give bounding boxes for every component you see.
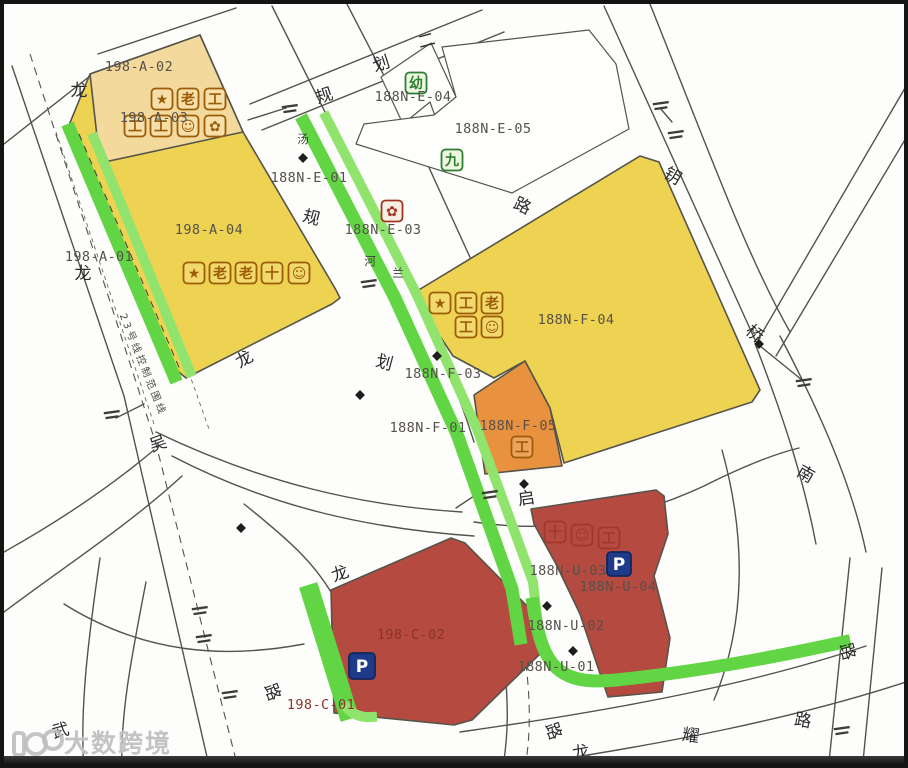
map-canvas: ★老工工工☺✿★老老十☺★工老工☺工✿幼九十☺工PP 198-A-02198-A… xyxy=(4,4,908,768)
road-line xyxy=(4,450,154,552)
road-line xyxy=(828,558,850,768)
parcel-label-188n-f-04: 188N-F-04 xyxy=(538,312,615,328)
parcel-label-188n-f-03: 188N-F-03 xyxy=(405,366,482,382)
parking-sign: P xyxy=(349,653,375,679)
road-name-char: 路 xyxy=(793,710,813,733)
watermark: 大数跨境 xyxy=(12,724,172,760)
utility-icon: 工 xyxy=(512,437,533,458)
station-icon: ✿ xyxy=(205,116,226,137)
survey-mark xyxy=(542,601,552,611)
survey-mark xyxy=(355,390,365,400)
road-line xyxy=(780,336,866,552)
road-name-char: 汤 xyxy=(297,132,309,146)
elderly-care-icon: 老 xyxy=(178,89,199,110)
road-name-char: 划 xyxy=(373,351,395,375)
road-line xyxy=(862,568,882,768)
svg-text:九: 九 xyxy=(444,153,459,169)
star-icon: ★ xyxy=(184,263,205,284)
svg-text:P: P xyxy=(613,555,625,575)
svg-text:老: 老 xyxy=(181,91,195,108)
svg-text:☺: ☺ xyxy=(485,320,500,336)
road-name-char: 路 xyxy=(510,194,534,219)
parcel-label-188n-f-05: 188N-F-05 xyxy=(480,418,557,434)
bottom-frame-bar xyxy=(4,756,904,764)
coordinate-annotation xyxy=(104,410,121,419)
parcel-label-198-a-04: 198-A-04 xyxy=(175,222,243,238)
svg-text:工: 工 xyxy=(459,320,473,336)
svg-text:工: 工 xyxy=(208,92,222,108)
road-name-char: 龙 xyxy=(71,81,88,101)
svg-text:老: 老 xyxy=(239,265,253,282)
road-name-char: 规 xyxy=(300,206,322,230)
parcel-label-188n-u-02: 188N-U-02 xyxy=(528,618,605,634)
watermark-logo xyxy=(12,728,58,756)
watermark-text: 大数跨境 xyxy=(64,724,172,760)
parcel-label-188n-e-03: 188N-E-03 xyxy=(345,222,422,238)
parcel-label-198-c-02: 198-C-02 xyxy=(377,627,445,643)
utility-icon: 工 xyxy=(205,89,226,110)
survey-mark xyxy=(568,646,578,656)
parcel-label-198-a-01: 198-A-01 xyxy=(65,249,133,265)
leader-line xyxy=(248,108,286,120)
svg-text:✿: ✿ xyxy=(209,119,221,135)
parcel-label-188n-e-01: 188N-E-01 xyxy=(271,170,348,186)
svg-text:✿: ✿ xyxy=(386,204,398,220)
star-icon: ★ xyxy=(152,89,173,110)
svg-text:工: 工 xyxy=(515,440,529,456)
road-line xyxy=(64,604,304,651)
star-icon: ★ xyxy=(430,293,451,314)
svg-text:工: 工 xyxy=(459,296,473,312)
parcel-label-188n-e-05: 188N-E-05 xyxy=(455,121,532,137)
utility-icon: 工 xyxy=(456,293,477,314)
road-line xyxy=(244,504,331,592)
coordinate-annotation xyxy=(222,690,239,699)
leader-line xyxy=(456,496,474,508)
utility-icon: 工 xyxy=(456,317,477,338)
community-icon: ☺ xyxy=(289,263,310,284)
parcel-label-188n-e-04: 188N-E-04 xyxy=(375,89,452,105)
svg-text:P: P xyxy=(356,657,368,677)
svg-text:工: 工 xyxy=(602,531,616,547)
svg-text:老: 老 xyxy=(485,295,499,312)
parcel-label-198-c-01: 198-C-01 xyxy=(287,697,355,713)
parcel-label-188n-f-01: 188N-F-01 xyxy=(390,420,467,436)
planning-map: ★老工工工☺✿★老老十☺★工老工☺工✿幼九十☺工PP 198-A-02198-A… xyxy=(0,0,908,768)
coordinate-annotation xyxy=(834,726,851,735)
road-name-char: 启 xyxy=(516,488,536,510)
elderly-care-icon: 老 xyxy=(482,293,503,314)
road-name-char: 路 xyxy=(259,681,284,704)
parcel-label-188n-u-03: 188N-U-03 xyxy=(530,563,607,579)
svg-text:老: 老 xyxy=(213,265,227,282)
parcel-label-198-a-03: 198-A-03 xyxy=(120,110,188,126)
parcel-label-188n-u-01: 188N-U-01 xyxy=(518,659,595,675)
road-name-char: 河 xyxy=(364,254,376,268)
survey-mark xyxy=(236,523,246,533)
road-line xyxy=(758,76,908,340)
road-name-char: 路 xyxy=(540,720,565,743)
road-line xyxy=(776,128,908,356)
coordinate-annotation xyxy=(653,101,670,110)
leader-line xyxy=(116,404,144,418)
coordinate-annotation xyxy=(668,130,685,139)
road-name-char: 路 xyxy=(835,641,859,663)
road-name-char: 二 xyxy=(416,29,438,53)
svg-text:十: 十 xyxy=(548,524,562,541)
coordinate-annotation xyxy=(361,279,378,288)
pump-station-icon: ✿ xyxy=(382,201,403,222)
survey-mark xyxy=(298,153,308,163)
clinic-icon: 十 xyxy=(262,263,283,284)
coordinate-annotation xyxy=(192,606,209,615)
svg-text:☺: ☺ xyxy=(292,266,307,282)
road-name-char: 耀 xyxy=(681,725,701,747)
leader-line xyxy=(660,108,672,122)
road-line xyxy=(156,432,462,512)
school-icon: 九 xyxy=(442,150,463,171)
svg-text:★: ★ xyxy=(188,266,201,282)
road-line xyxy=(172,456,474,536)
road-name-char: 规 xyxy=(313,84,335,108)
road-name-char: 龙 xyxy=(75,264,92,284)
survey-mark xyxy=(519,479,529,489)
elderly-care-icon: 老 xyxy=(210,263,231,284)
coordinate-annotation xyxy=(196,634,213,643)
road-name-char: 兰 xyxy=(392,266,404,280)
parking-sign: P xyxy=(607,552,631,576)
community-icon: ☺ xyxy=(482,317,503,338)
svg-text:☺: ☺ xyxy=(575,528,590,544)
parcel-label-198-a-02: 198-A-02 xyxy=(105,59,173,75)
elderly-care-icon: 老 xyxy=(236,263,257,284)
svg-text:★: ★ xyxy=(156,92,169,108)
road-line xyxy=(756,346,816,544)
parcel-label-188n-u-04: 188N-U-04 xyxy=(580,579,657,595)
svg-text:十: 十 xyxy=(265,265,279,282)
svg-text:★: ★ xyxy=(434,296,447,312)
